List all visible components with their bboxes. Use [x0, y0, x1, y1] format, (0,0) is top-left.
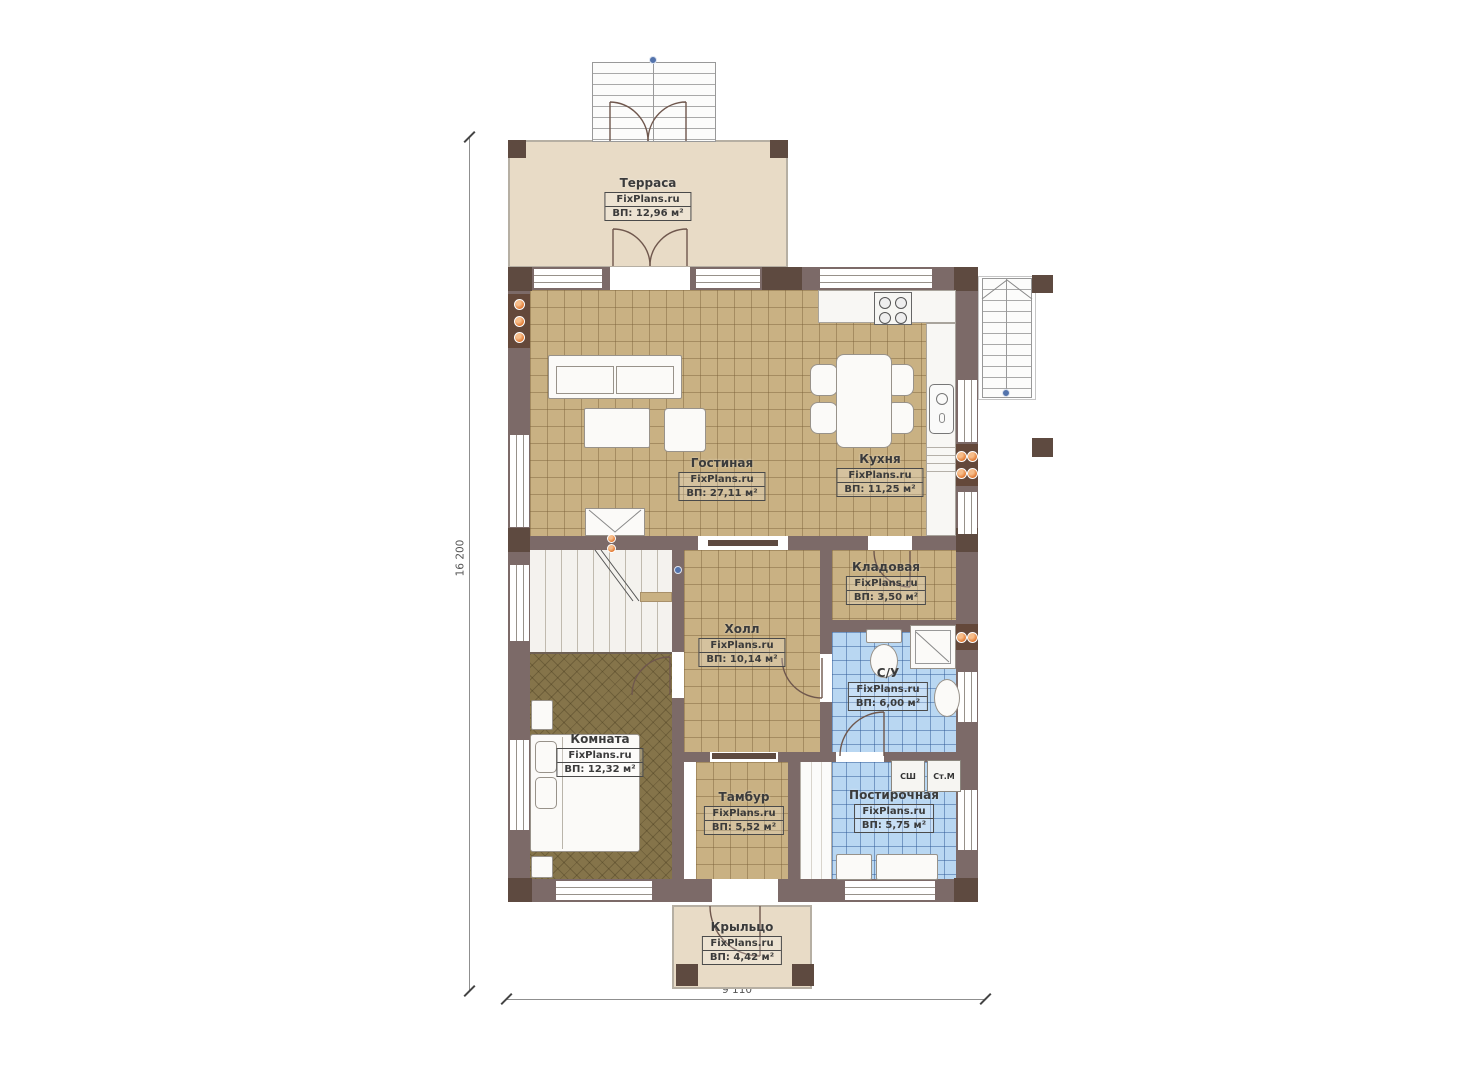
window — [510, 565, 529, 641]
opening-pantry-door — [868, 536, 912, 550]
stairs-marker-dot — [674, 566, 682, 574]
sofa — [548, 355, 682, 399]
wall-corner — [508, 878, 532, 902]
threshold — [712, 753, 776, 759]
room-area: ВП: 5,52 м² — [705, 821, 783, 834]
room-label-hall: Холл FixPlans.ru ВП: 10,14 м² — [698, 622, 785, 667]
window — [696, 269, 760, 288]
room-area: ВП: 5,75 м² — [855, 819, 933, 832]
entrance-door-opening — [712, 879, 778, 902]
nightstand — [531, 856, 553, 878]
staircase-landing-strip — [640, 592, 672, 602]
room-area: ВП: 10,14 м² — [699, 653, 784, 666]
room-info-box: FixPlans.ru ВП: 12,32 м² — [556, 748, 643, 777]
window — [845, 881, 935, 900]
room-info-box: FixPlans.ru ВП: 5,75 м² — [854, 804, 934, 833]
porch-post — [792, 964, 814, 986]
window — [958, 380, 977, 442]
dimension-label-vertical: 16 200 — [454, 540, 466, 577]
room-label-pantry: Кладовая FixPlans.ru ВП: 3,50 м² — [846, 560, 926, 605]
dryer-label: СШ — [900, 772, 916, 781]
exterior-post — [1032, 438, 1053, 457]
dimension-line-horizontal — [506, 999, 985, 1000]
wall-accent — [762, 267, 802, 290]
burner-icon — [895, 297, 907, 309]
room-name: Тамбур — [719, 790, 770, 804]
room-info-box: FixPlans.ru ВП: 10,14 м² — [698, 638, 785, 667]
window — [958, 672, 977, 722]
room-watermark: FixPlans.ru — [705, 807, 783, 821]
stairs-marker-dot — [1002, 389, 1010, 397]
porch-post — [676, 964, 698, 986]
room-label-living: Гостиная FixPlans.ru ВП: 27,11 м² — [678, 456, 765, 501]
room-name: Кухня — [859, 452, 900, 466]
washer-label: Ст.М — [933, 772, 955, 781]
window — [958, 790, 977, 850]
chair — [810, 364, 838, 396]
room-label-kitchen: Кухня FixPlans.ru ВП: 11,25 м² — [836, 452, 923, 497]
burner-icon — [879, 312, 891, 324]
room-label-bathroom: С/У FixPlans.ru ВП: 6,00 м² — [848, 666, 928, 711]
radiator-panel — [956, 444, 978, 486]
kitchen-sink — [929, 384, 954, 434]
room-name: Холл — [724, 622, 759, 636]
room-label-vestibule: Тамбур FixPlans.ru ВП: 5,52 м² — [704, 790, 784, 835]
laundry-cabinet — [876, 854, 938, 880]
room-name: Терраса — [620, 176, 677, 190]
room-label-laundry: Постирочная FixPlans.ru ВП: 5,75 м² — [849, 788, 939, 833]
terrace-door-opening — [610, 267, 690, 290]
fireplace-dot — [607, 544, 616, 553]
radiator-dot — [956, 632, 967, 643]
window — [958, 492, 977, 534]
window — [820, 269, 932, 288]
radiator-dot — [514, 316, 525, 327]
chair — [810, 402, 838, 434]
stairs-marker-dot — [649, 56, 657, 64]
room-info-box: FixPlans.ru ВП: 11,25 м² — [836, 468, 923, 497]
room-info-box: FixPlans.ru ВП: 3,50 м² — [846, 576, 926, 605]
stairs-center-line — [1006, 278, 1007, 398]
room-name: Гостиная — [691, 456, 753, 470]
exterior-stairs-top — [592, 62, 716, 142]
stairs-center-line — [653, 62, 654, 142]
room-watermark: FixPlans.ru — [847, 577, 925, 591]
dishwasher — [927, 440, 955, 472]
shower-inner — [915, 630, 951, 664]
radiator-dot — [514, 299, 525, 310]
radiator-dot — [967, 632, 978, 643]
wall-hall-left — [672, 550, 684, 880]
opening-laundry-door — [836, 752, 884, 762]
radiator-panel — [508, 294, 530, 348]
radiator-dot — [956, 468, 967, 479]
exterior-post — [1032, 275, 1053, 293]
room-area: ВП: 12,96 м² — [605, 207, 690, 220]
room-info-box: FixPlans.ru ВП: 6,00 м² — [848, 682, 928, 711]
window — [534, 269, 602, 288]
room-watermark: FixPlans.ru — [703, 937, 781, 951]
terrace-post — [508, 140, 526, 158]
room-watermark: FixPlans.ru — [855, 805, 933, 819]
exterior-stairs-right — [982, 278, 1032, 398]
radiator-dot — [967, 468, 978, 479]
sink-bowl-icon — [936, 393, 948, 405]
sofa-cushion — [616, 366, 674, 394]
room-area: ВП: 11,25 м² — [837, 483, 922, 496]
wall-corner — [954, 878, 978, 902]
room-name: С/У — [877, 666, 899, 680]
room-name: Кладовая — [852, 560, 920, 574]
nightstand — [531, 700, 553, 730]
window — [510, 435, 529, 527]
duct-shaft — [800, 762, 832, 880]
room-watermark: FixPlans.ru — [557, 749, 642, 763]
room-area: ВП: 4,42 м² — [703, 951, 781, 964]
armchair — [664, 408, 706, 452]
room-area: ВП: 12,32 м² — [557, 763, 642, 776]
room-name: Крыльцо — [711, 920, 774, 934]
stove — [874, 292, 912, 325]
fireplace — [585, 508, 645, 536]
room-watermark: FixPlans.ru — [849, 683, 927, 697]
radiator-dot — [514, 332, 525, 343]
fireplace-dot — [607, 534, 616, 543]
dining-table — [836, 354, 892, 448]
room-info-box: FixPlans.ru ВП: 27,11 м² — [678, 472, 765, 501]
shower-tray — [910, 625, 956, 669]
laundry-cabinet — [836, 854, 872, 880]
pillow — [535, 741, 557, 773]
toilet-tank — [866, 629, 902, 643]
faucet-icon — [939, 413, 945, 423]
wall-accent — [508, 528, 530, 552]
dimension-line-vertical — [469, 138, 470, 992]
burner-icon — [895, 312, 907, 324]
pillow — [535, 777, 557, 809]
room-area: ВП: 27,11 м² — [679, 487, 764, 500]
radiator-dot — [956, 451, 967, 462]
sofa-cushion — [556, 366, 614, 394]
opening-bedroom-door — [672, 652, 684, 698]
radiator-dot — [967, 451, 978, 462]
wall-corner — [508, 267, 532, 291]
bathroom-sink — [934, 679, 960, 717]
wall-corner — [954, 267, 978, 291]
room-info-box: FixPlans.ru ВП: 4,42 м² — [702, 936, 782, 965]
wall-vestibule-right — [788, 762, 800, 880]
room-name: Комната — [570, 732, 629, 746]
radiator-panel — [956, 624, 978, 650]
room-label-bedroom: Комната FixPlans.ru ВП: 12,32 м² — [556, 732, 643, 777]
room-watermark: FixPlans.ru — [837, 469, 922, 483]
burner-icon — [879, 297, 891, 309]
room-area: ВП: 3,50 м² — [847, 591, 925, 604]
window — [556, 881, 652, 900]
threshold — [708, 540, 778, 546]
room-label-porch: Крыльцо FixPlans.ru ВП: 4,42 м² — [702, 920, 782, 965]
opening-bathroom-door — [820, 654, 832, 702]
room-label-terrace: Терраса FixPlans.ru ВП: 12,96 м² — [604, 176, 691, 221]
room-info-box: FixPlans.ru ВП: 12,96 м² — [604, 192, 691, 221]
terrace-post — [770, 140, 788, 158]
window — [510, 740, 529, 830]
room-watermark: FixPlans.ru — [679, 473, 764, 487]
room-info-box: FixPlans.ru ВП: 5,52 м² — [704, 806, 784, 835]
coffee-table — [584, 408, 650, 448]
room-name: Постирочная — [849, 788, 939, 802]
room-watermark: FixPlans.ru — [699, 639, 784, 653]
floor-plan-canvas: 16 200 9 110 — [0, 0, 1474, 1080]
room-area: ВП: 6,00 м² — [849, 697, 927, 710]
room-watermark: FixPlans.ru — [605, 193, 690, 207]
